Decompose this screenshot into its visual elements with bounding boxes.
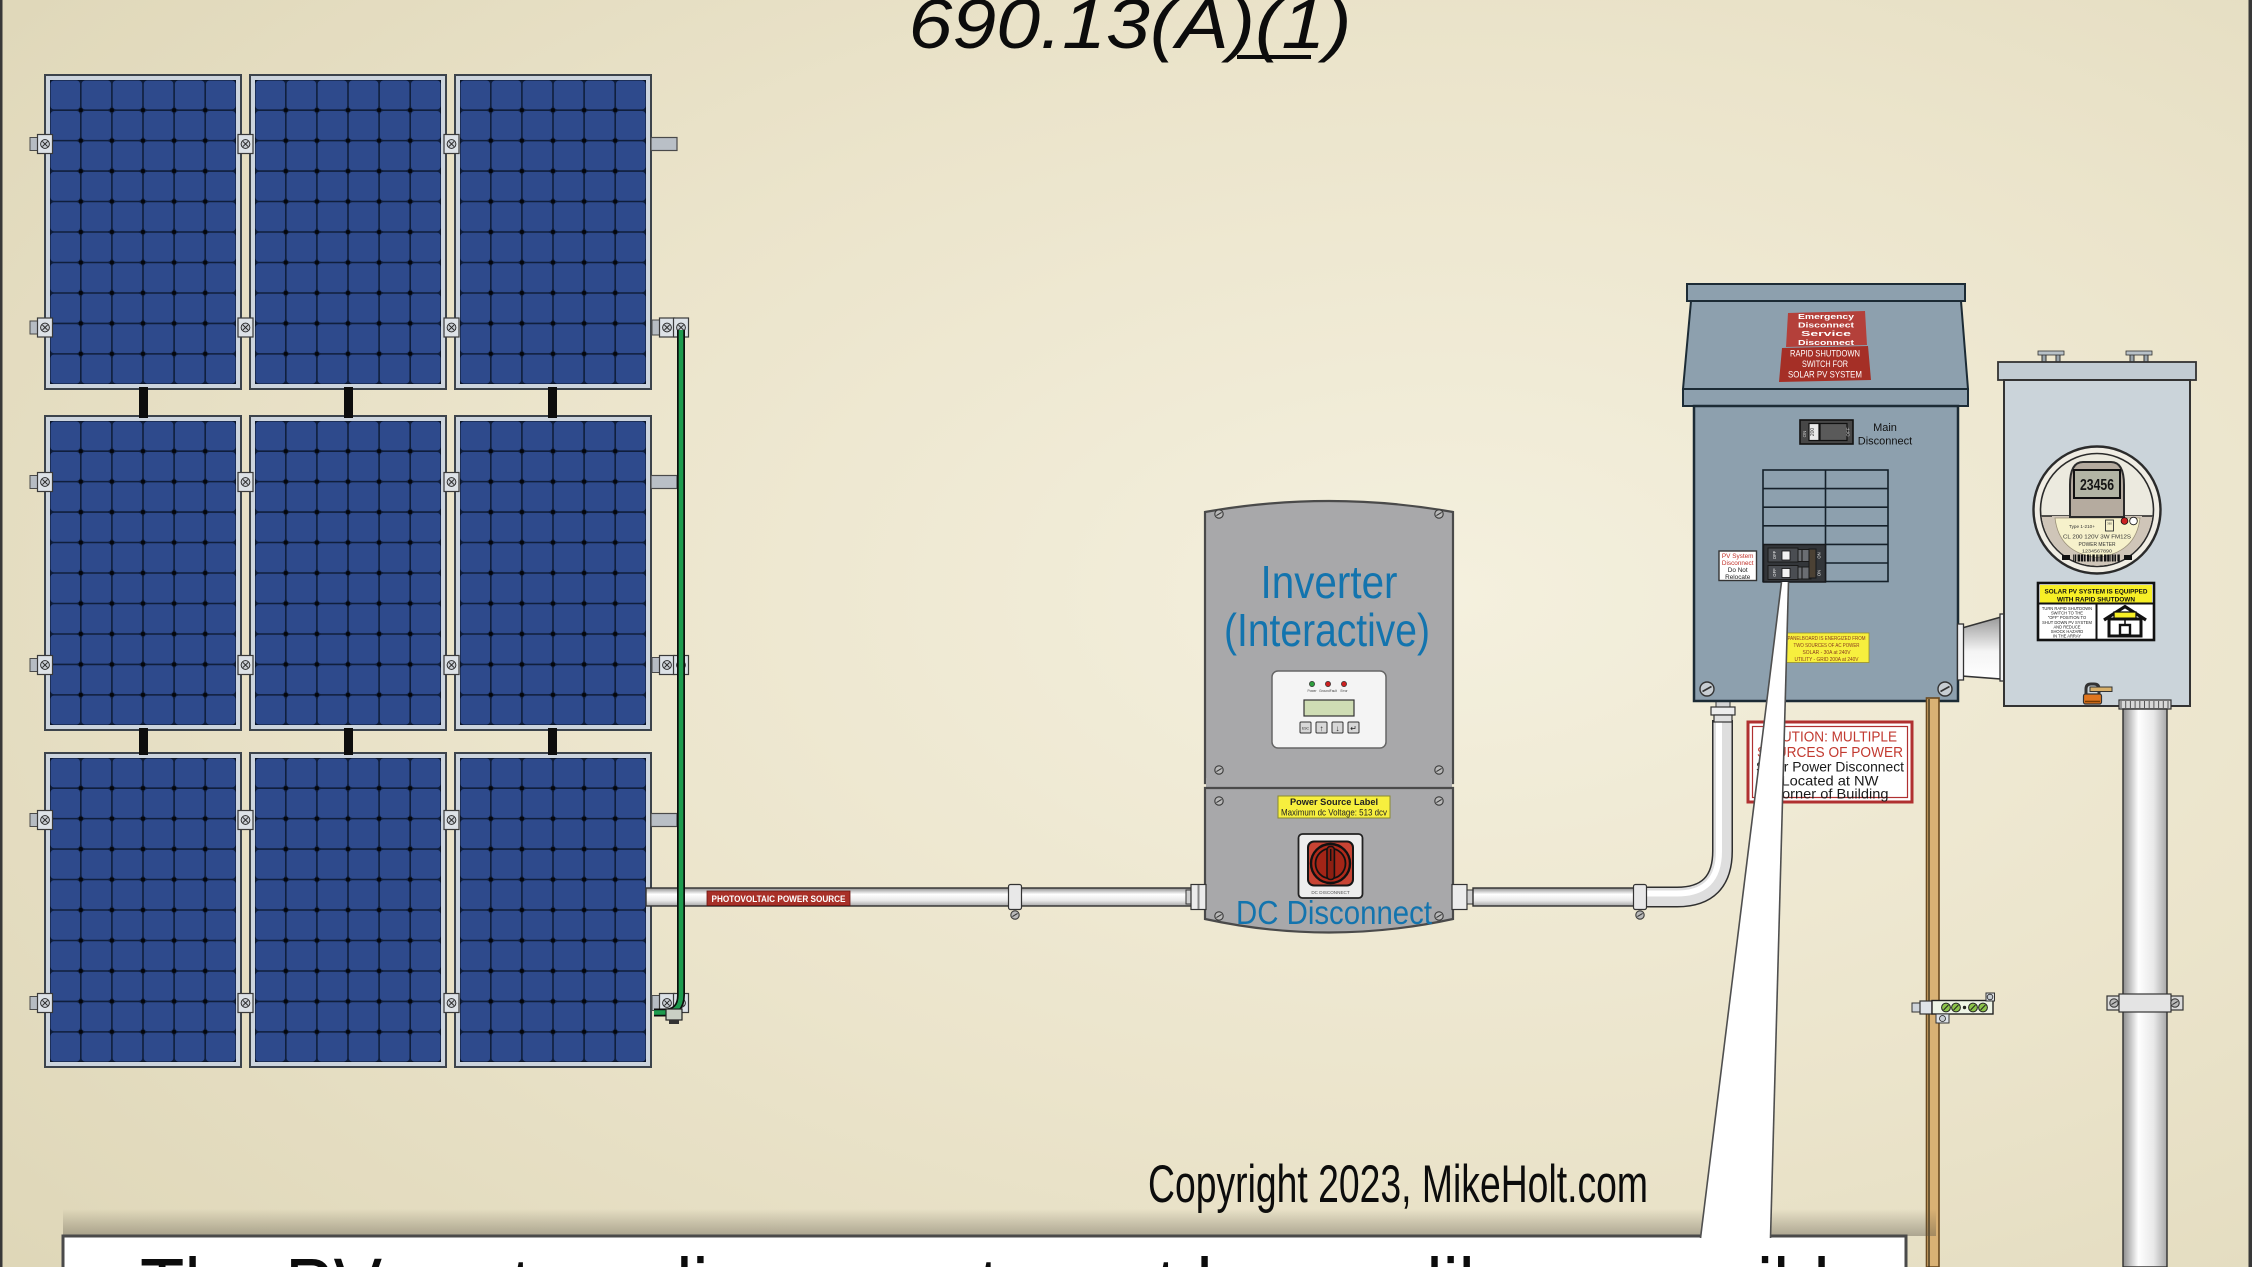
svg-text:Maximum dc Voltage: 513 dcv: Maximum dc Voltage: 513 dcv	[1281, 808, 1387, 818]
svg-text:IN THE ARRAY: IN THE ARRAY	[2053, 634, 2081, 639]
svg-text:690.13(A)(1): 690.13(A)(1)	[909, 0, 1352, 63]
svg-text:SOLAR PV SYSTEM: SOLAR PV SYSTEM	[1788, 370, 1862, 380]
svg-text:WITH RAPID SHUTDOWN: WITH RAPID SHUTDOWN	[2057, 597, 2135, 604]
svg-text:SOLAR - 30A at 240V: SOLAR - 30A at 240V	[1803, 650, 1851, 656]
svg-text:↑: ↑	[1320, 724, 1324, 733]
svg-text:Main: Main	[1873, 422, 1897, 434]
svg-text:ON: ON	[1817, 552, 1822, 558]
svg-text:PHOTOVOLTAIC POWER SOURCE: PHOTOVOLTAIC POWER SOURCE	[712, 894, 846, 905]
svg-text:↵: ↵	[1350, 724, 1357, 733]
svg-text:SWITCH FOR: SWITCH FOR	[1802, 359, 1848, 369]
svg-text:Inverter: Inverter	[1261, 556, 1398, 608]
svg-text:Corner of Building: Corner of Building	[1772, 786, 1889, 802]
svg-text:TWO SOURCES OF AC POWER: TWO SOURCES OF AC POWER	[1794, 643, 1860, 649]
svg-text:UTILITY - GRID 200A at 240V: UTILITY - GRID 200A at 240V	[1795, 657, 1859, 663]
svg-text:PANELBOARD IS ENERGIZED FROM: PANELBOARD IS ENERGIZED FROM	[1788, 636, 1866, 642]
svg-text:PV System: PV System	[1722, 553, 1754, 560]
svg-text:Relocate: Relocate	[1725, 574, 1751, 581]
svg-text:Power Source Label: Power Source Label	[1290, 797, 1378, 807]
svg-text:RAPID SHUTDOWN: RAPID SHUTDOWN	[1790, 349, 1860, 359]
svg-text:OFF: OFF	[1772, 568, 1777, 577]
svg-text:DC Disconnect: DC Disconnect	[1236, 894, 1432, 931]
svg-text:Power: Power	[1307, 689, 1317, 693]
svg-text:Disconnect: Disconnect	[1798, 338, 1855, 347]
svg-text:GroundFault: GroundFault	[1319, 689, 1337, 693]
svg-text:1234567890: 1234567890	[2082, 549, 2112, 555]
svg-text:ON: ON	[1802, 431, 1807, 438]
svg-text:200: 200	[1810, 428, 1816, 437]
svg-text:OFF: OFF	[1772, 550, 1777, 559]
svg-text:Disconnect: Disconnect	[1858, 436, 1912, 448]
svg-text:Copyright 2023, MikeHolt.com: Copyright 2023, MikeHolt.com	[1148, 1155, 1648, 1214]
svg-text:SOLAR PV SYSTEM IS EQUIPPED: SOLAR PV SYSTEM IS EQUIPPED	[2045, 589, 2148, 596]
svg-text:The PV system disconnect must: The PV system disconnect must be readily…	[140, 1241, 1870, 1267]
svg-text:CL 200 120V 3W FM1: CL 200 120V 3W FM12S	[2063, 535, 2132, 541]
svg-text:Type 1-210+: Type 1-210+	[2069, 524, 2095, 530]
svg-text:Error: Error	[1340, 689, 1348, 693]
svg-text:Do Not: Do Not	[1728, 567, 1748, 574]
svg-text:POWER METER: POWER METER	[2079, 542, 2116, 548]
svg-text:ON: ON	[1817, 570, 1822, 576]
svg-text:ESC: ESC	[1302, 727, 1310, 731]
svg-text:↓: ↓	[1336, 724, 1340, 733]
svg-text:OFF: OFF	[1846, 427, 1851, 436]
svg-text:23456: 23456	[2080, 477, 2114, 494]
svg-text:360: 360	[2107, 522, 2112, 526]
svg-text:Disconnect: Disconnect	[1722, 560, 1754, 567]
svg-text:(Interactive): (Interactive)	[1224, 604, 1430, 656]
